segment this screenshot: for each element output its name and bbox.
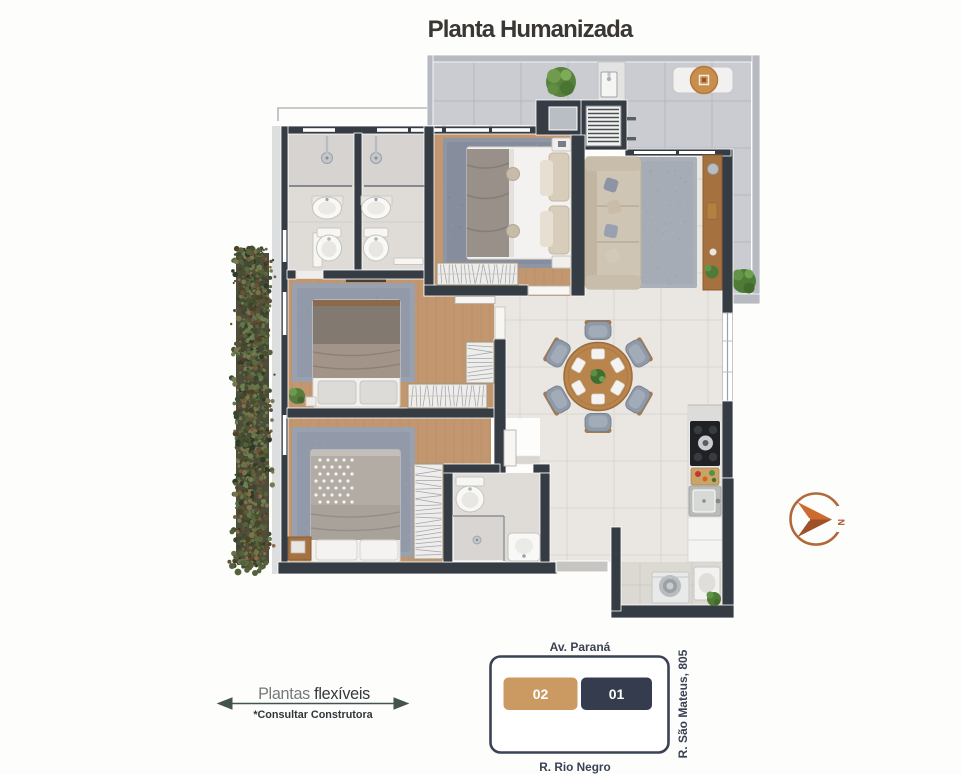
svg-text:Av. Paraná: Av. Paraná <box>550 640 611 654</box>
svg-text:R. São Mateus, 805: R. São Mateus, 805 <box>676 649 690 758</box>
svg-text:01: 01 <box>609 686 625 702</box>
svg-text:*Consultar Construtora: *Consultar Construtora <box>253 709 373 721</box>
svg-text:N: N <box>836 519 846 526</box>
svg-text:02: 02 <box>533 686 549 702</box>
svg-text:Planta Humanizada: Planta Humanizada <box>428 16 634 43</box>
svg-text:R. Rio Negro: R. Rio Negro <box>539 760 610 774</box>
svg-text:Plantas flexíveis: Plantas flexíveis <box>258 685 370 703</box>
